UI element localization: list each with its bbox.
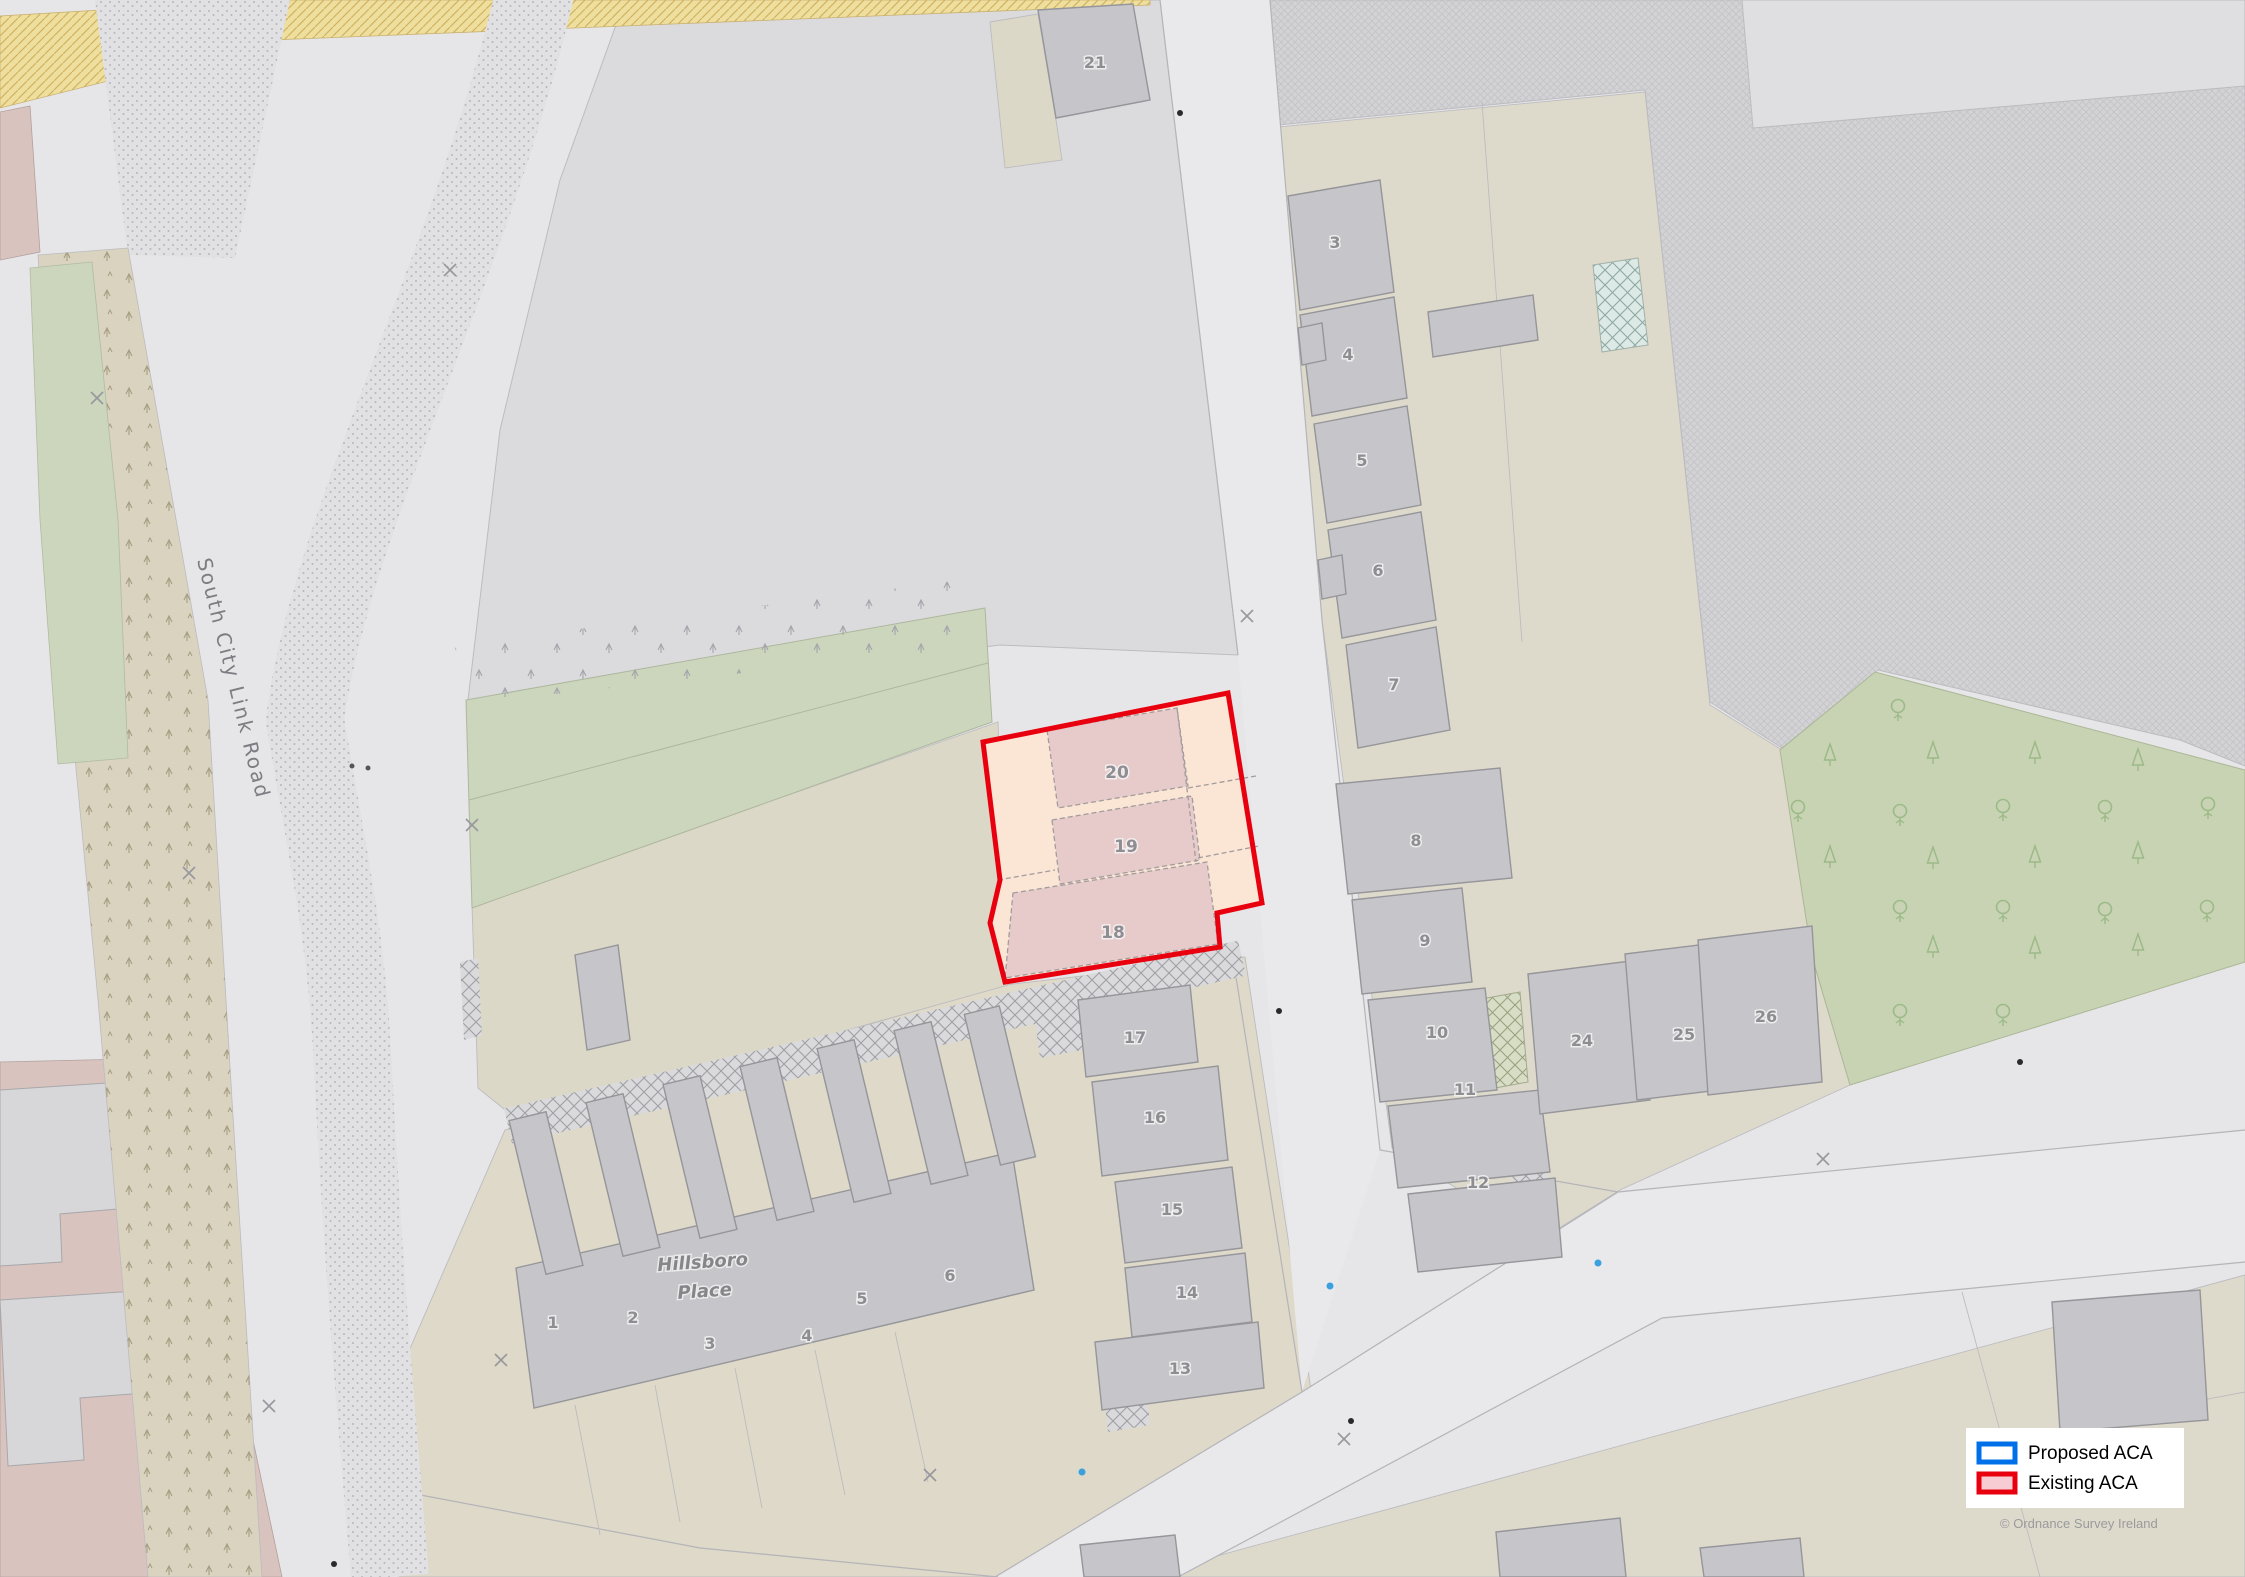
building-8 (1336, 768, 1512, 894)
building-label-h5: 5 (856, 1289, 867, 1308)
legend: Proposed ACA Existing ACA (1966, 1428, 2184, 1508)
legend-label-existing: Existing ACA (2028, 1474, 2138, 1493)
building-label-4: 4 (1342, 345, 1353, 364)
building-label-15: 15 (1161, 1200, 1183, 1219)
building-12 (1408, 1178, 1562, 1272)
building-label-7: 7 (1388, 675, 1399, 694)
building-label-11: 11 (1454, 1080, 1476, 1099)
building-label-h6: 6 (944, 1266, 955, 1285)
building-br-large (2052, 1290, 2208, 1432)
building-label-24: 24 (1571, 1031, 1593, 1050)
building-label-12: 12 (1467, 1173, 1489, 1192)
existing-aca-swatch (1976, 1471, 2018, 1495)
copyright-attribution: © Ordnance Survey Ireland (2000, 1516, 2158, 1531)
building-label-h3: 3 (704, 1334, 715, 1353)
building-label-6: 6 (1372, 561, 1383, 580)
building-label-20: 20 (1105, 763, 1129, 783)
building-label-18: 18 (1101, 923, 1125, 943)
building-label-17: 17 (1124, 1028, 1146, 1047)
legend-label-proposed: Proposed ACA (2028, 1444, 2153, 1463)
legend-item-proposed: Proposed ACA (1976, 1441, 2184, 1465)
ordnance-survey-map: South City Link Road Hillsboro Place 21 … (0, 0, 2245, 1577)
outbuilding-c (1318, 555, 1346, 599)
proposed-aca-swatch (1976, 1441, 2018, 1465)
legend-item-existing: Existing ACA (1976, 1471, 2184, 1495)
lattice-blue-patch (1593, 258, 1648, 352)
building-label-14: 14 (1176, 1283, 1198, 1302)
building-label-h2: 2 (627, 1308, 638, 1327)
building-label-19: 19 (1114, 837, 1138, 857)
building-label-25: 25 (1673, 1025, 1695, 1044)
map-canvas: South City Link Road Hillsboro Place 21 … (0, 0, 2245, 1577)
outbuilding-b (1298, 323, 1326, 365)
building-label-8: 8 (1410, 831, 1421, 850)
building-label-h4: 4 (801, 1326, 812, 1345)
building-label-21: 21 (1084, 53, 1106, 72)
building-label-9: 9 (1419, 931, 1430, 950)
building-label-10: 10 (1426, 1023, 1448, 1042)
building-3 (1288, 180, 1394, 310)
building-label-h1: 1 (547, 1313, 558, 1332)
building-9 (1352, 888, 1472, 994)
building-10 (1368, 988, 1497, 1102)
place-label-line2: Place (677, 1279, 733, 1304)
building-label-3: 3 (1329, 233, 1340, 252)
building-label-13: 13 (1169, 1359, 1191, 1378)
building-label-5: 5 (1356, 451, 1367, 470)
building-label-16: 16 (1144, 1108, 1166, 1127)
building-label-26: 26 (1755, 1007, 1777, 1026)
